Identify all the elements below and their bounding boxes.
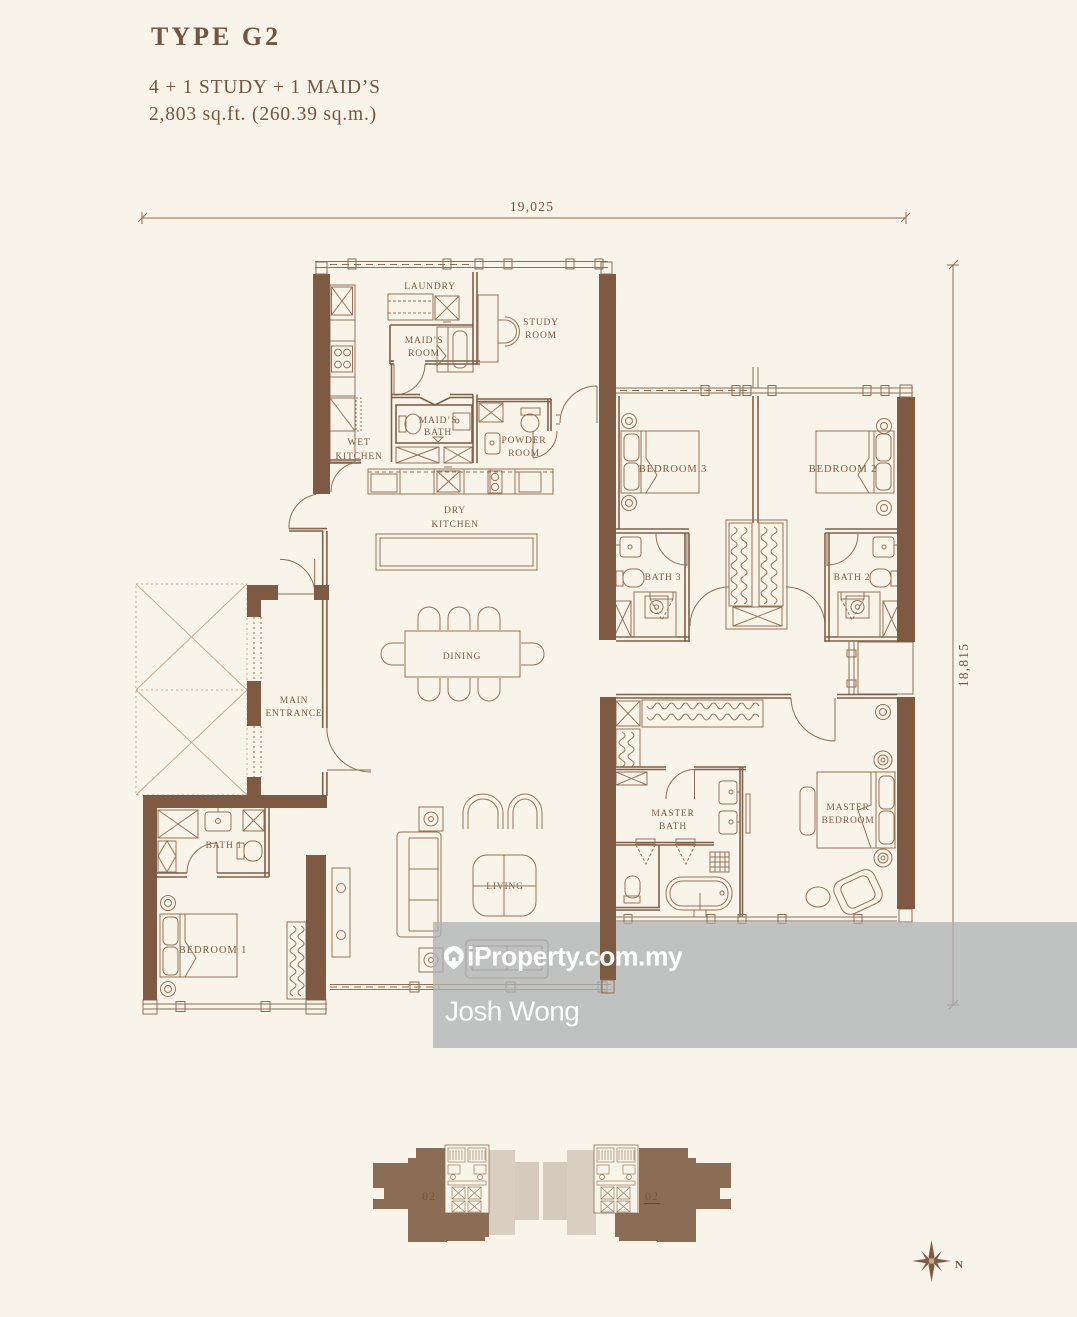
svg-text:02: 02 (645, 1189, 659, 1203)
svg-text:ROOM: ROOM (525, 331, 557, 341)
svg-text:2,803 sq.ft. (260.39 sq.m.): 2,803 sq.ft. (260.39 sq.m.) (149, 104, 377, 125)
svg-text:BEDROOM: BEDROOM (821, 816, 874, 826)
svg-text:BATH 2: BATH 2 (834, 573, 871, 583)
svg-text:DRY: DRY (444, 506, 466, 516)
svg-text:MAIN: MAIN (280, 696, 309, 706)
svg-text:BATH 3: BATH 3 (645, 573, 682, 583)
svg-text:LIVING: LIVING (486, 882, 524, 892)
svg-text:iProperty.com.my: iProperty.com.my (467, 942, 683, 972)
svg-text:4 + 1 STUDY + 1 MAID’S: 4 + 1 STUDY + 1 MAID’S (149, 77, 381, 98)
svg-text:18,815: 18,815 (956, 643, 971, 687)
svg-text:BATH: BATH (659, 822, 687, 832)
svg-text:ENTRANCE: ENTRANCE (265, 709, 322, 719)
svg-text:BEDROOM 2: BEDROOM 2 (809, 464, 877, 475)
svg-text:MAID’S: MAID’S (419, 416, 458, 426)
svg-text:MAID’S: MAID’S (405, 336, 444, 346)
svg-text:STUDY: STUDY (523, 318, 559, 328)
svg-text:BEDROOM 3: BEDROOM 3 (639, 464, 707, 475)
svg-text:N: N (955, 1259, 963, 1271)
svg-text:19,025: 19,025 (510, 199, 554, 214)
svg-text:KITCHEN: KITCHEN (431, 520, 478, 530)
svg-text:Josh Wong: Josh Wong (445, 996, 579, 1027)
svg-text:DINING: DINING (443, 652, 482, 662)
svg-text:POWDER: POWDER (502, 436, 547, 446)
svg-text:LAUNDRY: LAUNDRY (404, 282, 456, 292)
svg-text:MASTER: MASTER (651, 809, 694, 819)
svg-text:02: 02 (422, 1189, 436, 1203)
svg-text:TYPE G2: TYPE G2 (151, 22, 281, 51)
svg-text:WET: WET (348, 438, 371, 448)
svg-text:ROOM: ROOM (408, 349, 440, 359)
